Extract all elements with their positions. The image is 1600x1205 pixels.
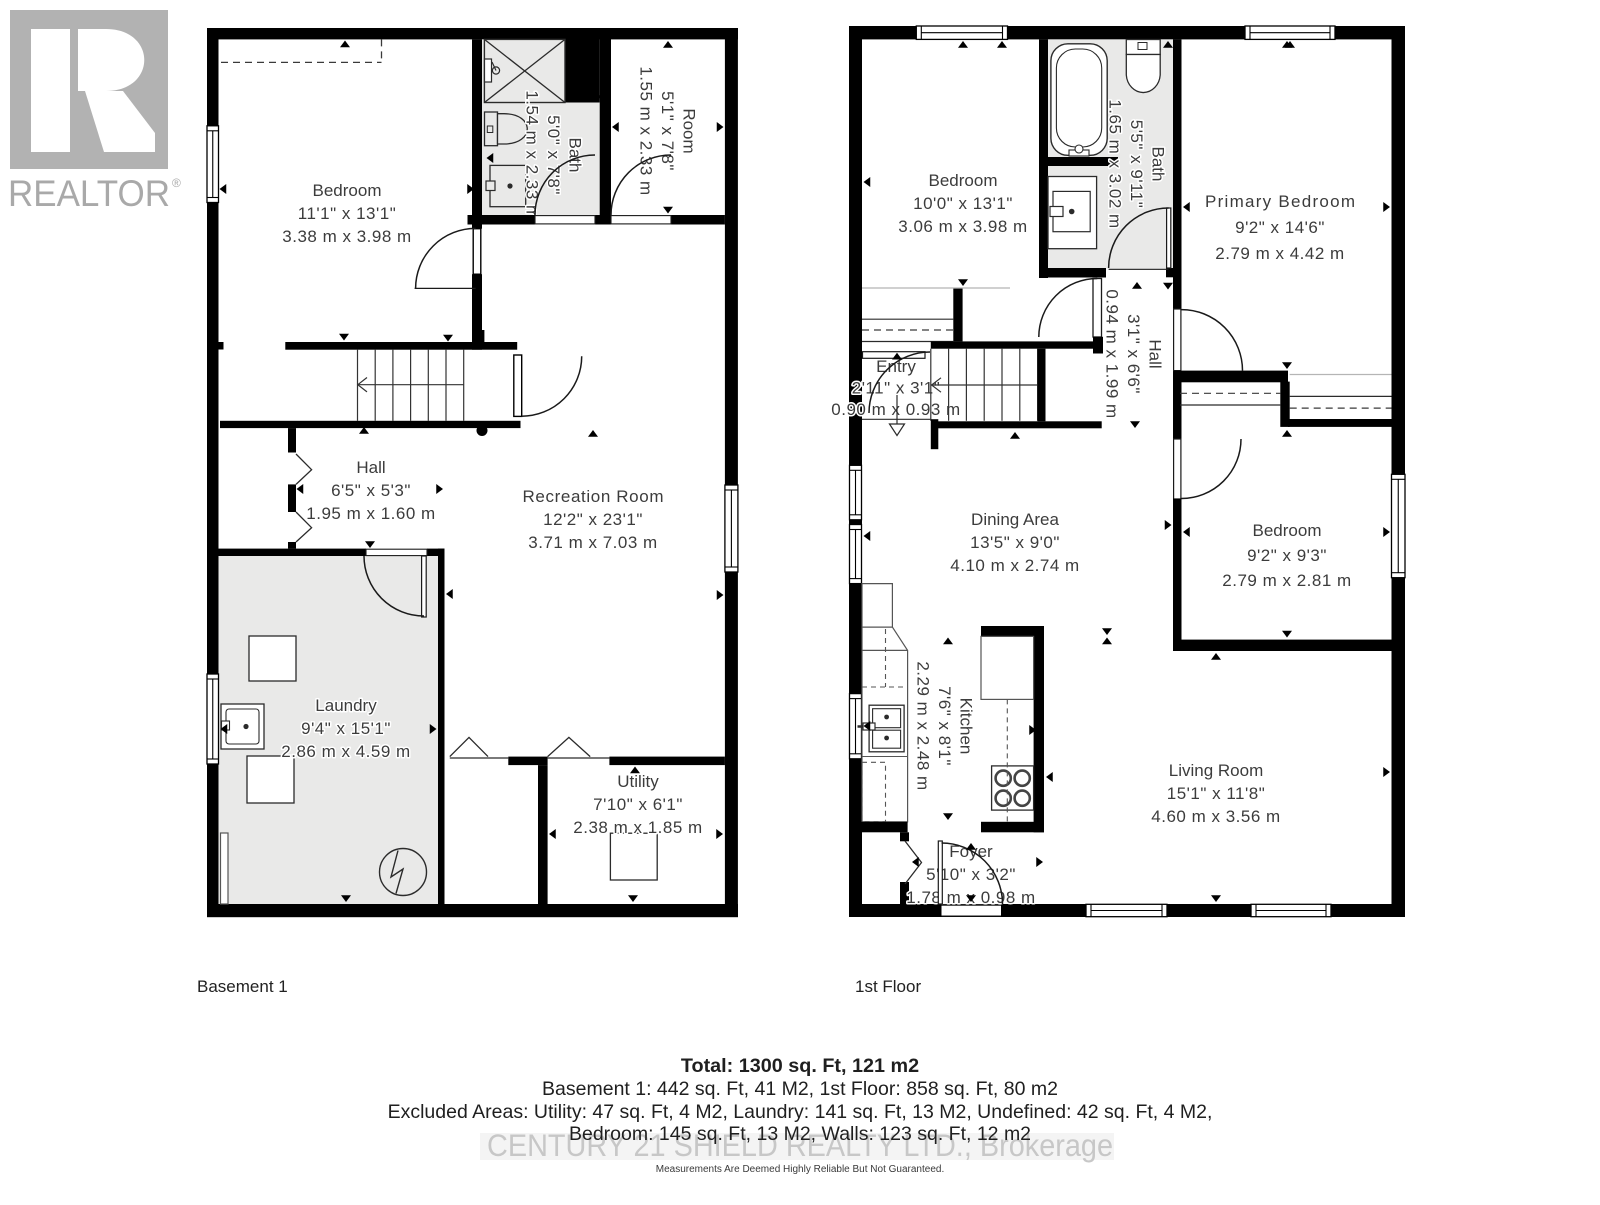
svg-text:Hall: Hall xyxy=(1146,339,1165,368)
svg-text:Total: 1300 sq. Ft, 121 m2: Total: 1300 sq. Ft, 121 m2 xyxy=(681,1055,919,1077)
svg-text:2.29 m x 2.48 m: 2.29 m x 2.48 m xyxy=(914,661,933,790)
svg-text:®: ® xyxy=(172,176,181,190)
svg-text:1.65 m x 3.02 m: 1.65 m x 3.02 m xyxy=(1106,99,1125,228)
svg-text:Utility: Utility xyxy=(617,772,659,791)
svg-text:Bedroom: Bedroom xyxy=(313,181,382,200)
svg-text:Recreation Room: Recreation Room xyxy=(523,487,664,506)
svg-text:4.60 m x 3.56 m: 4.60 m x 3.56 m xyxy=(1151,807,1280,826)
svg-text:11'1" x 13'1": 11'1" x 13'1" xyxy=(298,204,396,223)
svg-text:1.55 m x 2.33 m: 1.55 m x 2.33 m xyxy=(637,66,656,195)
svg-text:9'2" x 14'6": 9'2" x 14'6" xyxy=(1235,218,1325,237)
svg-text:1.54 m x 2.33 m: 1.54 m x 2.33 m xyxy=(523,90,542,219)
svg-text:2'11" x 3'1": 2'11" x 3'1" xyxy=(852,379,941,398)
svg-text:7'6" x 8'1": 7'6" x 8'1" xyxy=(935,686,954,766)
svg-text:Bedroom: Bedroom xyxy=(1253,521,1322,540)
svg-text:0.94 m x 1.99 m: 0.94 m x 1.99 m xyxy=(1103,289,1122,418)
svg-text:13'5" x 9'0": 13'5" x 9'0" xyxy=(970,533,1060,552)
svg-text:3.38 m x 3.98 m: 3.38 m x 3.98 m xyxy=(282,227,411,246)
svg-text:Dining Area: Dining Area xyxy=(971,510,1059,529)
svg-text:2.79 m x 4.42 m: 2.79 m x 4.42 m xyxy=(1215,244,1344,263)
svg-text:5'1" x 7'8": 5'1" x 7'8" xyxy=(658,91,677,171)
svg-text:6'5" x 5'3": 6'5" x 5'3" xyxy=(331,481,411,500)
svg-text:Hall: Hall xyxy=(356,458,385,477)
svg-text:Bedroom: Bedroom xyxy=(929,171,998,190)
svg-text:REALTOR: REALTOR xyxy=(8,173,170,214)
svg-text:9'4" x 15'1": 9'4" x 15'1" xyxy=(301,719,391,738)
svg-text:Excluded Areas: Utility: 47 sq: Excluded Areas: Utility: 47 sq. Ft, 4 M2… xyxy=(388,1101,1213,1123)
svg-text:Entry: Entry xyxy=(876,357,916,376)
svg-text:Kitchen: Kitchen xyxy=(957,698,976,755)
svg-text:Room: Room xyxy=(680,108,699,153)
svg-text:3'1" x 6'6": 3'1" x 6'6" xyxy=(1124,314,1143,394)
svg-text:2.86 m x 4.59 m: 2.86 m x 4.59 m xyxy=(281,742,410,761)
svg-text:Measurements Are Deemed Highly: Measurements Are Deemed Highly Reliable … xyxy=(656,1164,944,1175)
svg-text:Primary Bedroom: Primary Bedroom xyxy=(1205,192,1355,211)
svg-text:7'10" x 6'1": 7'10" x 6'1" xyxy=(593,795,683,814)
svg-text:1.95 m x 1.60 m: 1.95 m x 1.60 m xyxy=(306,504,435,523)
svg-text:Bedroom: 145 sq. Ft, 13 M2, Wa: Bedroom: 145 sq. Ft, 13 M2, Walls: 123 s… xyxy=(569,1123,1031,1145)
svg-text:5'5" x 9'11": 5'5" x 9'11" xyxy=(1127,120,1146,209)
svg-text:4.10 m x 2.74 m: 4.10 m x 2.74 m xyxy=(950,556,1079,575)
svg-text:2.79 m x 2.81 m: 2.79 m x 2.81 m xyxy=(1222,571,1351,590)
svg-text:0.90 m x 0.93 m: 0.90 m x 0.93 m xyxy=(831,400,960,419)
svg-text:1st Floor: 1st Floor xyxy=(855,977,921,996)
svg-text:12'2" x 23'1": 12'2" x 23'1" xyxy=(543,510,643,529)
svg-text:9'2" x 9'3": 9'2" x 9'3" xyxy=(1247,546,1327,565)
svg-text:Laundry: Laundry xyxy=(315,696,377,715)
svg-text:2.38 m x 1.85 m: 2.38 m x 1.85 m xyxy=(573,818,702,837)
svg-text:Living Room: Living Room xyxy=(1169,761,1264,780)
svg-text:Basement 1: 442 sq. Ft, 41 M2,: Basement 1: 442 sq. Ft, 41 M2, 1st Floor… xyxy=(542,1078,1058,1100)
svg-text:3.06 m x 3.98 m: 3.06 m x 3.98 m xyxy=(898,217,1027,236)
svg-text:3.71 m x 7.03 m: 3.71 m x 7.03 m xyxy=(528,533,657,552)
svg-text:10'0" x 13'1": 10'0" x 13'1" xyxy=(913,194,1013,213)
svg-text:Basement 1: Basement 1 xyxy=(197,977,288,996)
svg-text:5'0" x 7'8": 5'0" x 7'8" xyxy=(544,115,563,195)
svg-text:Bath: Bath xyxy=(566,138,585,173)
svg-text:15'1" x 11'8": 15'1" x 11'8" xyxy=(1167,784,1265,803)
svg-text:Bath: Bath xyxy=(1149,147,1168,182)
